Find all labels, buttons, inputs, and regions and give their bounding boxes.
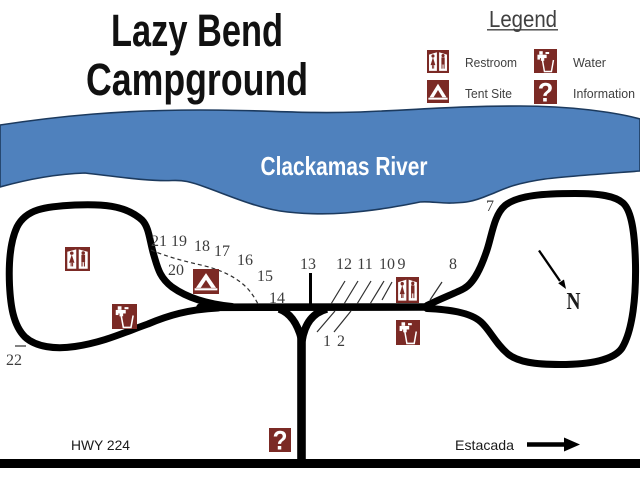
svg-text:N: N	[567, 289, 582, 315]
svg-text:Water: Water	[573, 55, 607, 70]
svg-text:Legend: Legend	[489, 6, 557, 32]
svg-text:22: 22	[6, 352, 22, 369]
svg-text:1: 1	[323, 333, 331, 350]
svg-text:16: 16	[237, 252, 253, 269]
svg-text:2: 2	[337, 333, 345, 350]
svg-text:HWY 224: HWY 224	[71, 437, 130, 453]
svg-text:Lazy Bend: Lazy Bend	[111, 5, 283, 56]
svg-text:12: 12	[336, 256, 352, 273]
svg-text:Tent Site: Tent Site	[465, 86, 512, 101]
svg-text:8: 8	[449, 256, 457, 273]
svg-text:Restroom: Restroom	[465, 55, 517, 70]
svg-text:Information: Information	[573, 86, 635, 101]
svg-text:13: 13	[300, 256, 316, 273]
svg-text:20: 20	[168, 262, 184, 279]
svg-text:18: 18	[194, 238, 210, 255]
svg-text:21: 21	[151, 233, 167, 250]
svg-text:11: 11	[357, 256, 372, 273]
svg-text:15: 15	[257, 268, 273, 285]
svg-text:17: 17	[214, 243, 230, 260]
svg-text:14: 14	[269, 290, 285, 307]
svg-text:Campground: Campground	[86, 54, 308, 105]
svg-text:Clackamas River: Clackamas River	[261, 151, 428, 181]
svg-text:19: 19	[171, 233, 187, 250]
svg-text:10: 10	[379, 256, 395, 273]
svg-text:9: 9	[398, 256, 406, 273]
svg-text:7: 7	[486, 198, 494, 215]
svg-text:Estacada: Estacada	[455, 437, 514, 453]
